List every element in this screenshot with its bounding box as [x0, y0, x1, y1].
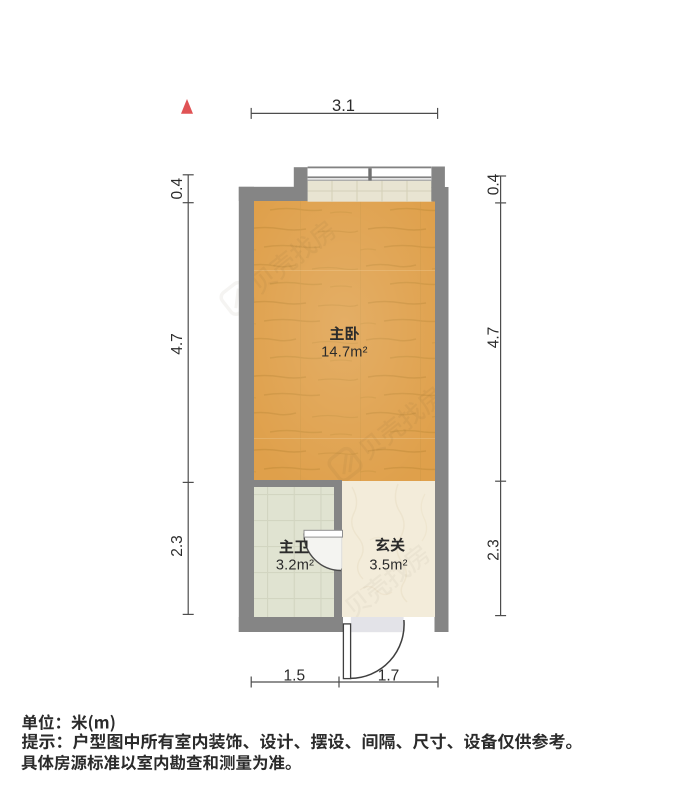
- svg-text:2.3: 2.3: [486, 539, 503, 561]
- svg-text:3.5m²: 3.5m²: [369, 557, 407, 573]
- svg-text:4.7: 4.7: [486, 327, 503, 349]
- svg-text:1.5: 1.5: [284, 667, 306, 684]
- svg-text:1.7: 1.7: [378, 667, 400, 684]
- svg-text:3.1: 3.1: [332, 97, 355, 115]
- svg-text:0.4: 0.4: [169, 178, 186, 200]
- svg-text:4.7: 4.7: [169, 333, 186, 355]
- svg-text:0.4: 0.4: [486, 173, 503, 195]
- svg-text:2.3: 2.3: [169, 535, 186, 557]
- svg-text:14.7m²: 14.7m²: [321, 344, 368, 360]
- svg-text:3.2m²: 3.2m²: [276, 557, 314, 573]
